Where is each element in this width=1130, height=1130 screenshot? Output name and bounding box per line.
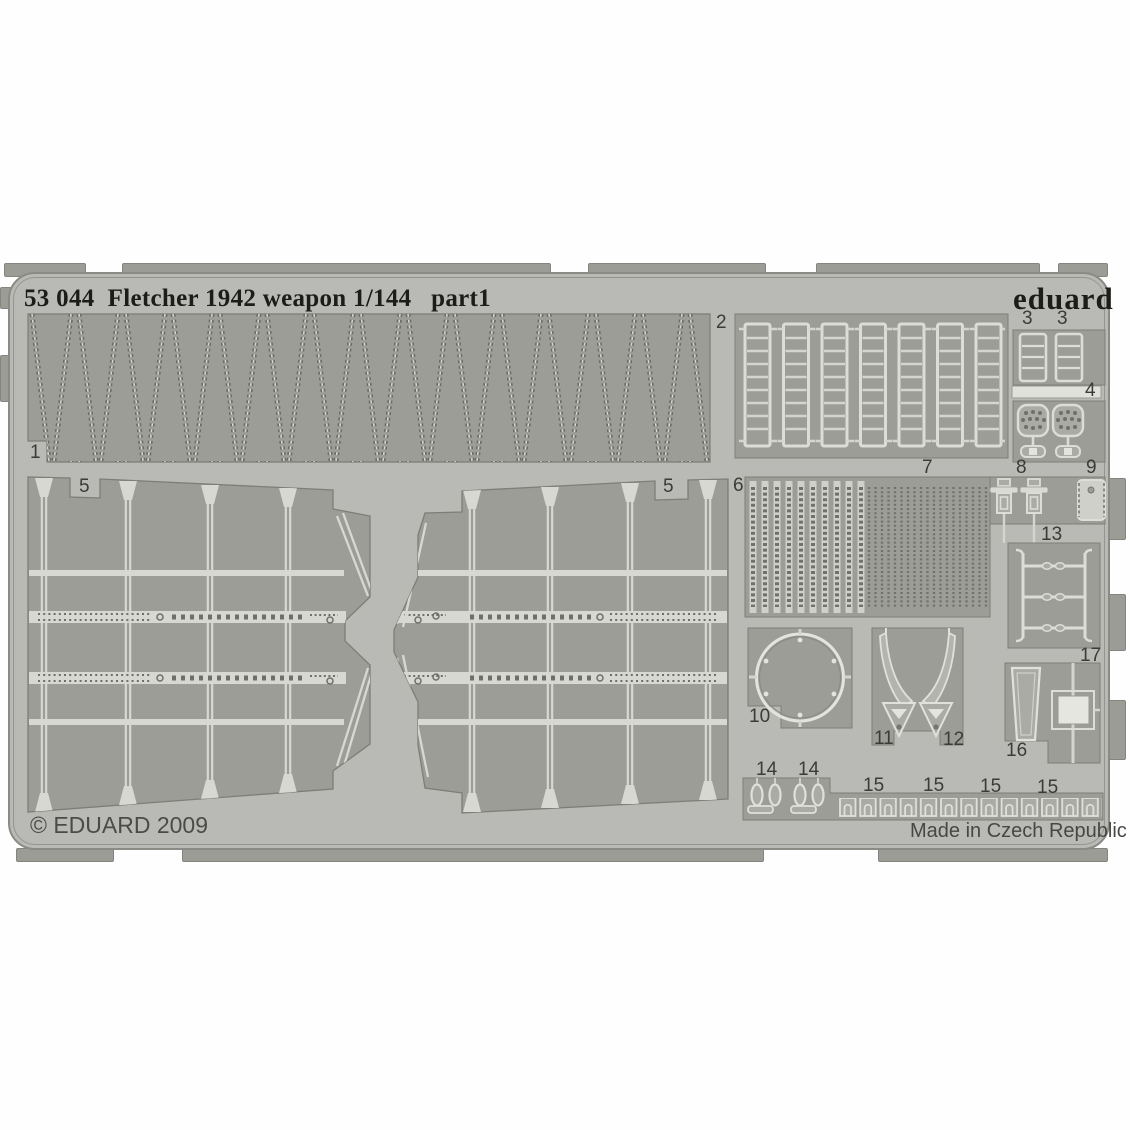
part-number-label: 1 [30,443,41,464]
part-number-label: 8 [1016,458,1027,479]
part-number-label: 11 [874,729,894,750]
part-number-label: 6 [733,476,744,497]
part-number-label: 15 [923,776,944,797]
part-number-label: 4 [1085,381,1096,402]
part-number-label: 10 [749,707,770,728]
part-number-label: 3 [1022,309,1033,330]
part-number-label: 14 [756,760,777,781]
part-number-label: 15 [1037,778,1058,799]
part-number-label: 5 [663,477,674,498]
part-number-label: 17 [1080,646,1101,667]
part-number-label: 9 [1086,458,1097,479]
part-number-label: 13 [1041,525,1062,546]
part-number-label: 12 [943,730,964,751]
part-number-label: 2 [716,313,727,334]
part-number-label: 3 [1057,309,1068,330]
part-number-label: 14 [798,760,819,781]
part-number-label: 5 [79,477,90,498]
photo-etch-sheet-photo: 53 044 Fletcher 1942 weapon 1/144 part1 … [0,0,1130,1130]
part-number-label: 16 [1006,741,1027,762]
part-number-label: 15 [863,776,884,797]
part-number-label: 15 [980,777,1001,798]
part-number-labels: 12334556789101112131414151515151617 [0,0,1130,1130]
part-number-label: 7 [922,458,933,479]
